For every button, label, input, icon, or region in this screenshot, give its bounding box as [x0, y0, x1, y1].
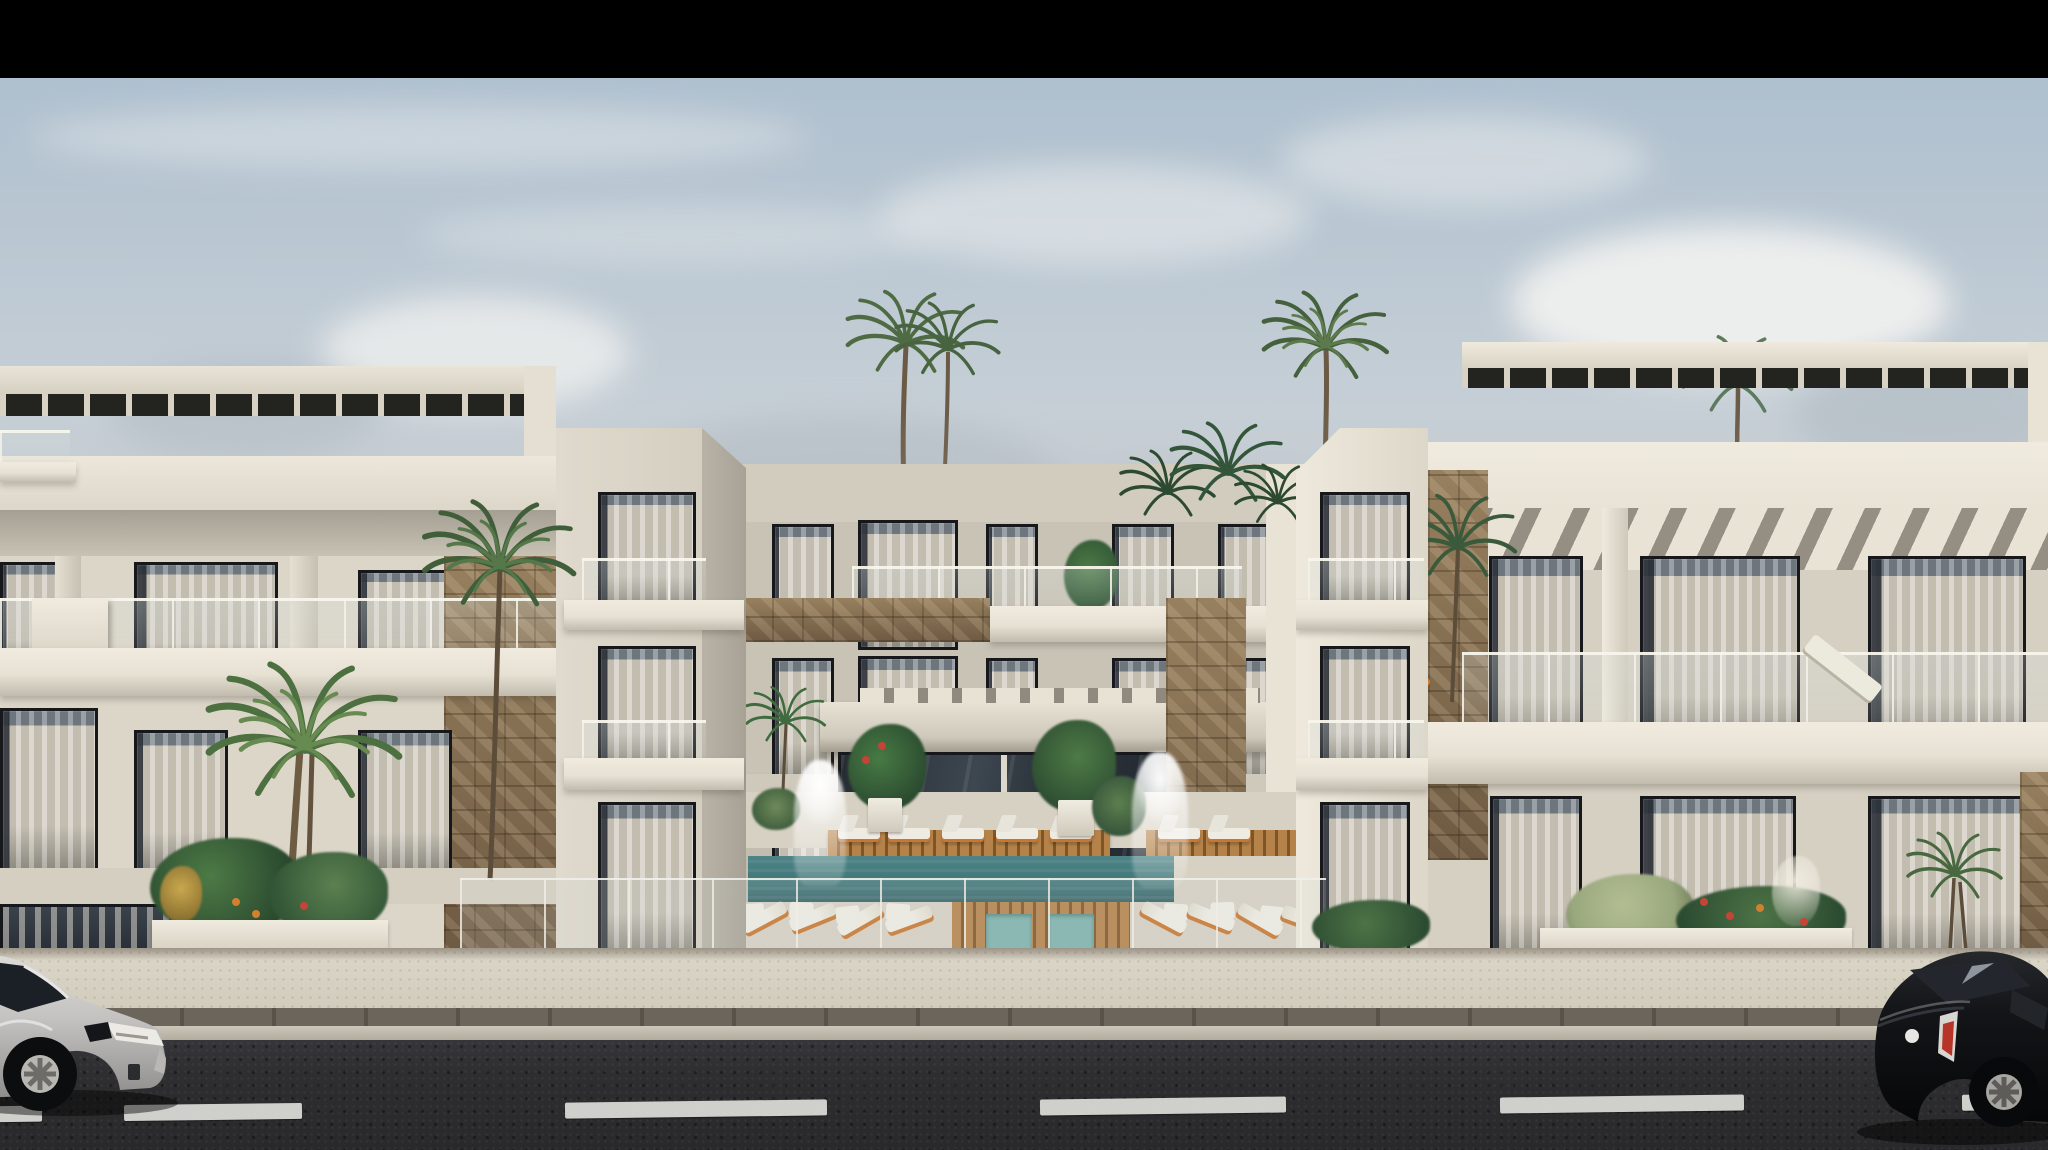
architectural-render-scene [0, 0, 2048, 1150]
balcony-slab [1392, 722, 2048, 784]
right-stair-tower [1296, 428, 1428, 955]
balcony-slab [0, 462, 76, 482]
pergola-support [2028, 342, 2048, 448]
pergola-slats [0, 394, 556, 416]
pergola-beam [0, 366, 556, 394]
curb [0, 1026, 2048, 1040]
paver-strip [0, 1008, 2048, 1026]
glass-balustrade [460, 878, 1326, 954]
stone-accent [2020, 772, 2048, 955]
pergola-beam [1462, 342, 2048, 368]
red-flower [862, 756, 870, 764]
lane-marking [565, 1099, 827, 1118]
letterbox-bar [0, 0, 2048, 78]
red-flower [300, 902, 308, 910]
water-feature [794, 760, 846, 886]
planter-pot [868, 798, 902, 832]
cloud [880, 165, 1310, 265]
tower-side-face [702, 428, 746, 955]
balcony-slab [1296, 758, 1428, 790]
red-flower [1700, 898, 1708, 906]
water-feature [1132, 752, 1188, 888]
lane-marking [1500, 1095, 1744, 1114]
balcony-slab [1296, 600, 1428, 630]
sun-lounger [994, 812, 1040, 852]
pergola-slats [1462, 368, 2036, 388]
tower-base-shrubs [1312, 900, 1430, 952]
planter-flowers [752, 788, 800, 830]
lane-marking [1040, 1096, 1286, 1115]
pampas-plumes [1772, 856, 1820, 926]
rooftop-palm-cluster [1116, 428, 1306, 578]
red-flower [878, 742, 886, 750]
sun-lounger [940, 812, 986, 852]
orange-flower [232, 898, 240, 906]
building-ground-shadow [0, 948, 2048, 960]
window [0, 708, 98, 874]
orange-flower [1756, 904, 1764, 912]
silver-car [0, 898, 193, 1120]
black-car [1852, 932, 2048, 1150]
planter-pot [1058, 800, 1094, 836]
orange-flower [252, 910, 260, 918]
cloud [30, 105, 810, 169]
balcony-railing [1462, 652, 2048, 725]
red-flower [1800, 918, 1808, 926]
sun-lounger [1206, 812, 1252, 852]
balcony-slab [990, 606, 1310, 642]
cloud [420, 205, 940, 265]
cloud [1280, 115, 1650, 207]
red-flower [1726, 912, 1734, 920]
stone-band [742, 598, 990, 642]
